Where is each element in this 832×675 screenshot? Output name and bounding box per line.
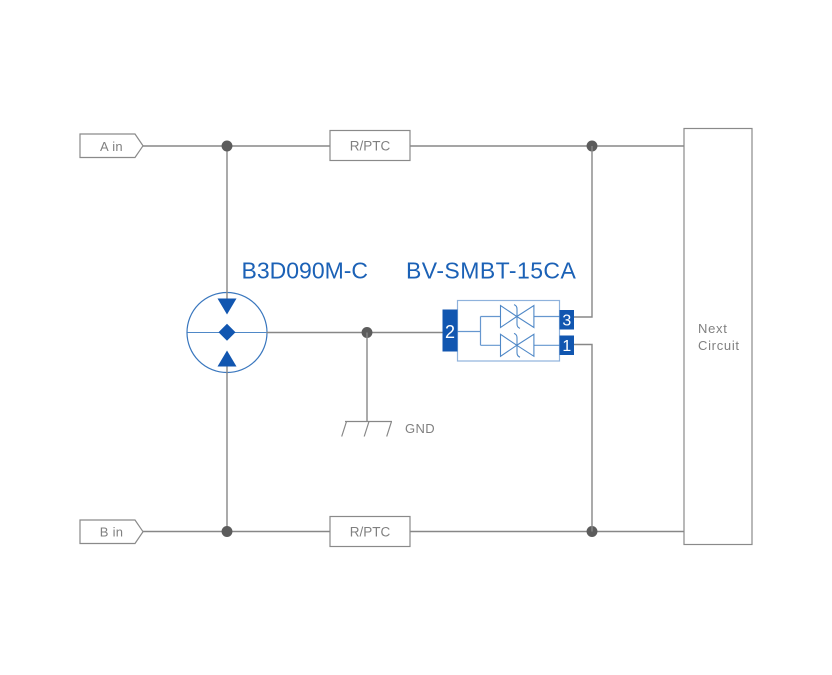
svg-text:A in: A in <box>100 139 123 154</box>
svg-text:Next: Next <box>698 321 728 336</box>
svg-text:B in: B in <box>100 525 124 540</box>
svg-text:3: 3 <box>562 313 571 330</box>
svg-text:2: 2 <box>445 322 455 342</box>
svg-text:R/PTC: R/PTC <box>350 524 391 539</box>
svg-text:R/PTC: R/PTC <box>350 139 391 154</box>
svg-text:B3D090M-C: B3D090M-C <box>242 258 369 284</box>
svg-text:GND: GND <box>405 421 435 436</box>
svg-text:BV-SMBT-15CA: BV-SMBT-15CA <box>406 258 576 284</box>
svg-text:1: 1 <box>562 338 571 355</box>
svg-text:Circuit: Circuit <box>698 338 740 353</box>
